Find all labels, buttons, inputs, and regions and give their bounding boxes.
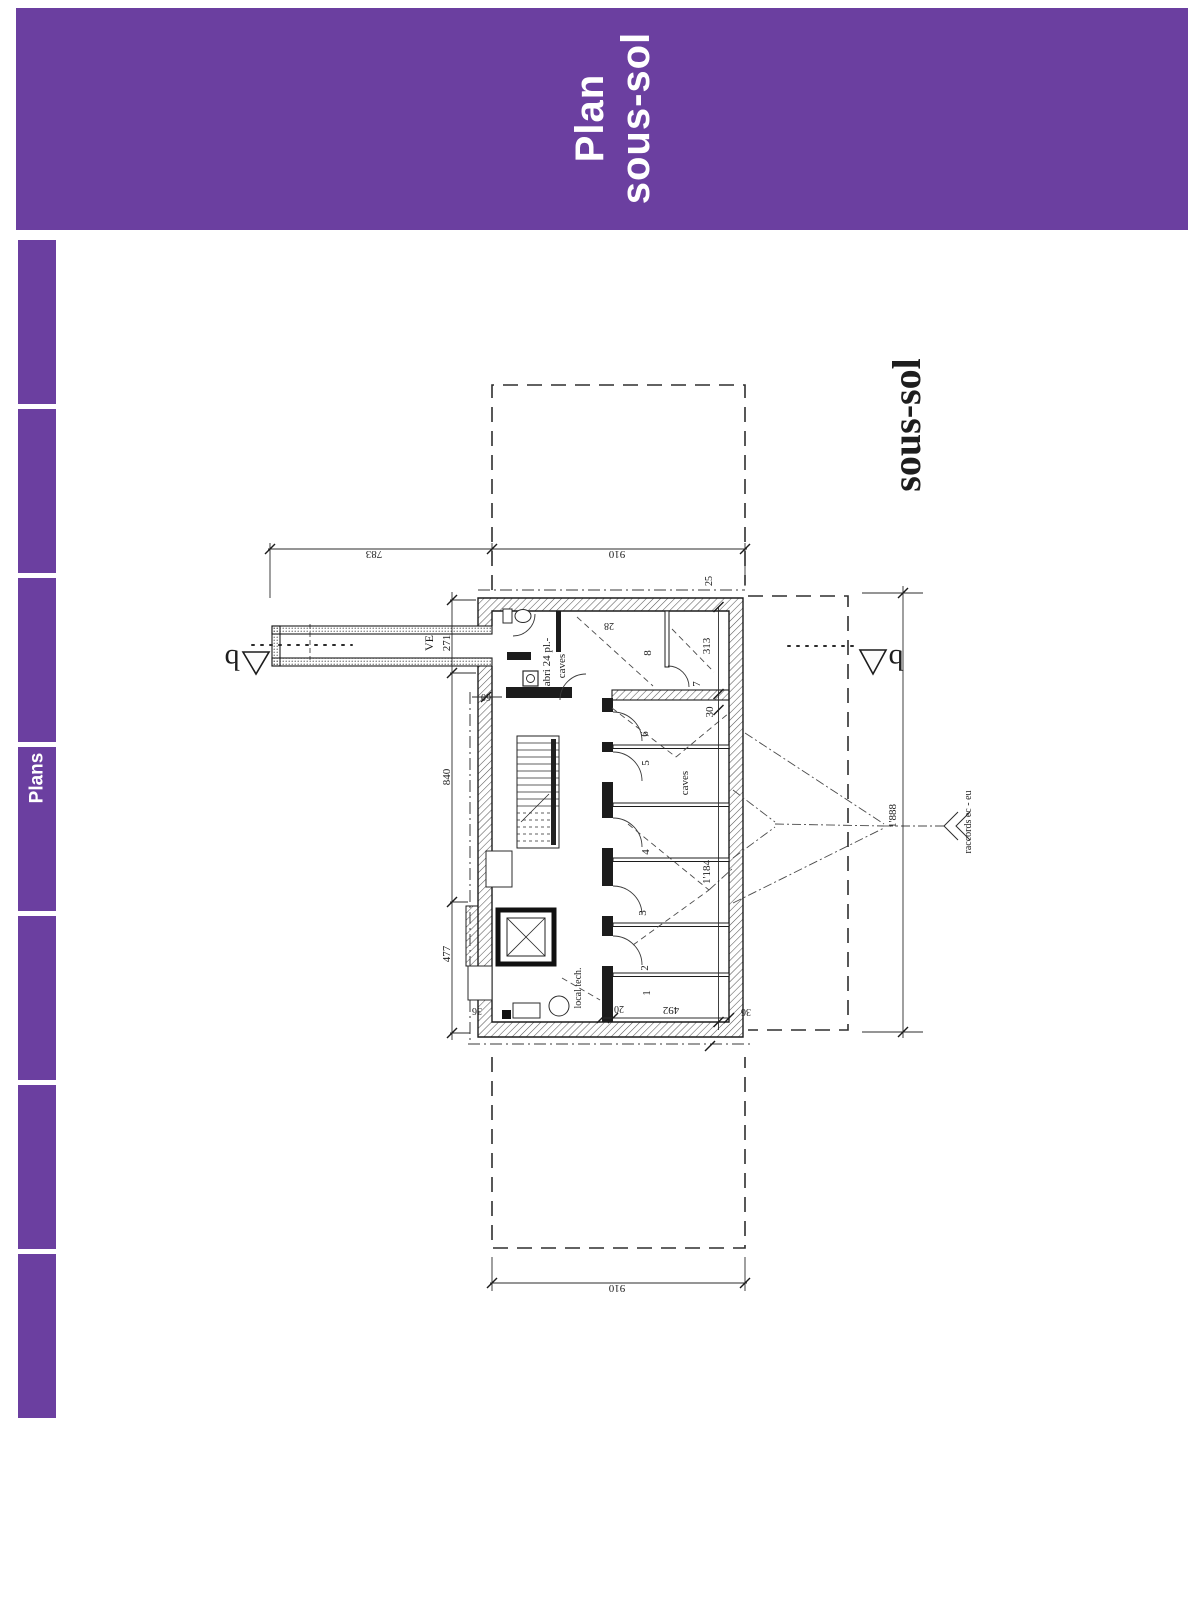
dim-910-top-label: 910 bbox=[608, 548, 625, 560]
abri-label-line2: caves bbox=[556, 654, 568, 678]
pipe-runs bbox=[562, 617, 970, 1000]
dim-840-label: 840 bbox=[441, 768, 453, 785]
drawing-labels: sous-sol b b VE 271 840 477 783 910 910 … bbox=[225, 358, 975, 1294]
dimension-lines bbox=[265, 543, 923, 1291]
raccords-label: raccords ec - eu bbox=[963, 790, 974, 853]
plan-title: sous-sol bbox=[884, 358, 929, 491]
room-3-label: 3 bbox=[637, 910, 649, 916]
room-1-label: 1 bbox=[641, 990, 653, 996]
ve-corridor bbox=[252, 624, 492, 666]
room-8-label: 8 bbox=[642, 650, 654, 656]
room-6-label: 6 bbox=[639, 731, 651, 737]
dim-1184-label: 1'184 bbox=[701, 860, 713, 884]
dimension-ticks bbox=[265, 544, 908, 1288]
dim-20-label: 20 bbox=[614, 1003, 624, 1014]
dim-783-label: 783 bbox=[365, 548, 382, 560]
upper-floor-outline-bottom bbox=[492, 1057, 745, 1248]
dim-492-label: 492 bbox=[663, 1004, 680, 1016]
local-tech-label: local tech. bbox=[573, 967, 584, 1008]
dim-36-left-label: 36 bbox=[472, 1005, 482, 1016]
section-triangle-left bbox=[243, 652, 269, 674]
dim-313-label: 313 bbox=[701, 637, 713, 654]
dim-477-label: 477 bbox=[441, 945, 453, 962]
dim-30-label: 30 bbox=[704, 706, 716, 718]
room-2-label: 2 bbox=[639, 965, 651, 971]
section-letter-left: b bbox=[225, 643, 240, 676]
caves-label: caves bbox=[679, 771, 691, 795]
section-letter-right: b bbox=[889, 643, 904, 676]
dim-36-right-label: 36 bbox=[741, 1006, 751, 1017]
dim-25-label: 25 bbox=[704, 576, 715, 586]
room-5-label: 5 bbox=[640, 760, 652, 766]
abri-label-line1: abri 24 pl.- bbox=[541, 637, 553, 686]
floorplan-drawing: sous-sol b b VE 271 840 477 783 910 910 … bbox=[0, 0, 1200, 1600]
dim-60-label: 60 bbox=[481, 691, 491, 702]
ve-label: VE bbox=[422, 635, 436, 651]
staircase bbox=[517, 736, 559, 848]
dim-271-label: 271 bbox=[441, 635, 453, 652]
room-4-label: 4 bbox=[640, 849, 652, 855]
dim-28-label: 28 bbox=[604, 620, 614, 631]
room-7-label: 7 bbox=[691, 681, 703, 687]
section-triangle-right bbox=[860, 650, 886, 674]
dim-910-bottom-label: 910 bbox=[608, 1282, 625, 1294]
dim-1888-label: 1'888 bbox=[887, 804, 899, 828]
